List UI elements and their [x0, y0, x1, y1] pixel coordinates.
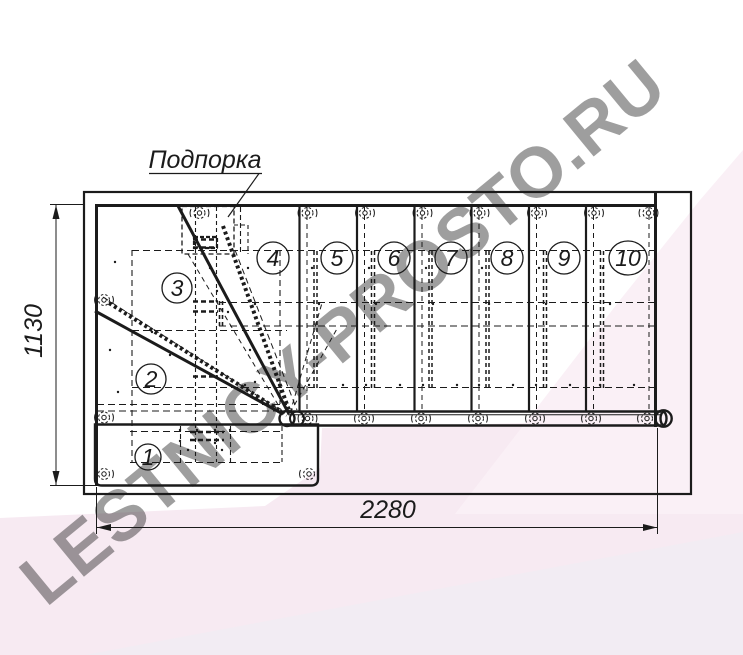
- staircase-plan-drawing: LESTNICY-PROSTO.RU: [0, 0, 743, 655]
- step-number-label: 4: [267, 245, 280, 271]
- step-number-label: 6: [388, 245, 401, 271]
- arrow-up: [53, 205, 60, 219]
- step-balloon-4: 4: [257, 242, 289, 274]
- step-balloon-10: 10: [609, 241, 647, 275]
- step-number-label: 1: [142, 444, 155, 470]
- step-balloon-8: 8: [491, 242, 523, 274]
- dimension-height: 1130: [20, 205, 97, 486]
- screw-speck: [179, 440, 181, 442]
- screw-speck: [114, 261, 116, 263]
- dimension-height-value: 1130: [20, 304, 48, 358]
- blueprint-canvas: LESTNICY-PROSTO.RU: [0, 0, 743, 655]
- screw-speck: [365, 384, 367, 386]
- screw-speck: [602, 267, 604, 269]
- screw-speck: [247, 267, 249, 269]
- screw-speck: [488, 303, 490, 305]
- screw-speck: [221, 449, 223, 451]
- screw-speck: [399, 384, 401, 386]
- screw-speck: [229, 429, 231, 431]
- step-balloon-2: 2: [136, 364, 166, 394]
- screw-speck: [569, 384, 571, 386]
- screw-speck: [535, 384, 537, 386]
- screw-speck: [254, 303, 256, 305]
- screw-speck: [311, 267, 313, 269]
- screw-speck: [214, 429, 216, 431]
- screw-speck: [117, 391, 119, 393]
- screw-speck: [179, 429, 181, 431]
- step-number-label: 9: [558, 245, 571, 271]
- step-number-label: 5: [331, 245, 344, 271]
- screw-speck: [254, 381, 256, 383]
- step-number-label: 8: [501, 245, 514, 271]
- screw-speck: [278, 384, 280, 386]
- screw-speck: [422, 384, 424, 386]
- screw-speck: [481, 267, 483, 269]
- fastener-icon: [190, 208, 209, 219]
- step-number-label: 3: [171, 275, 184, 301]
- screw-speck: [308, 384, 310, 386]
- screw-speck: [425, 267, 427, 269]
- screw-speck: [375, 303, 377, 305]
- screw-speck: [538, 267, 540, 269]
- screw-speck: [342, 384, 344, 386]
- screw-speck: [216, 290, 218, 292]
- screw-speck: [169, 354, 171, 356]
- support-leader-line: [228, 174, 259, 218]
- step-balloon-9: 9: [548, 242, 580, 274]
- screw-speck: [545, 303, 547, 305]
- step-number-label: 10: [615, 245, 641, 271]
- screw-speck: [478, 384, 480, 386]
- screw-speck: [512, 384, 514, 386]
- screw-speck: [151, 331, 153, 333]
- step-number-label: 7: [445, 245, 459, 271]
- step-balloon-5: 5: [321, 242, 353, 274]
- screw-speck: [187, 449, 189, 451]
- arrow-down: [53, 471, 60, 485]
- screw-speck: [209, 267, 211, 269]
- screw-speck: [318, 303, 320, 305]
- screw-speck: [456, 384, 458, 386]
- support-label: Подпорка: [148, 146, 261, 174]
- screw-speck: [244, 384, 246, 386]
- screw-speck: [432, 303, 434, 305]
- screw-speck: [633, 384, 635, 386]
- screw-speck: [368, 267, 370, 269]
- step-number-label: 2: [144, 366, 158, 392]
- screw-speck: [227, 311, 229, 313]
- screw-speck: [599, 384, 601, 386]
- screw-speck: [609, 303, 611, 305]
- screw-speck: [196, 429, 198, 431]
- step-balloon-3: 3: [162, 273, 192, 303]
- screw-speck: [214, 442, 216, 444]
- screw-speck: [249, 349, 251, 351]
- dimension-width-value: 2280: [359, 496, 416, 524]
- screw-speck: [109, 349, 111, 351]
- background-shapes: [0, 150, 743, 655]
